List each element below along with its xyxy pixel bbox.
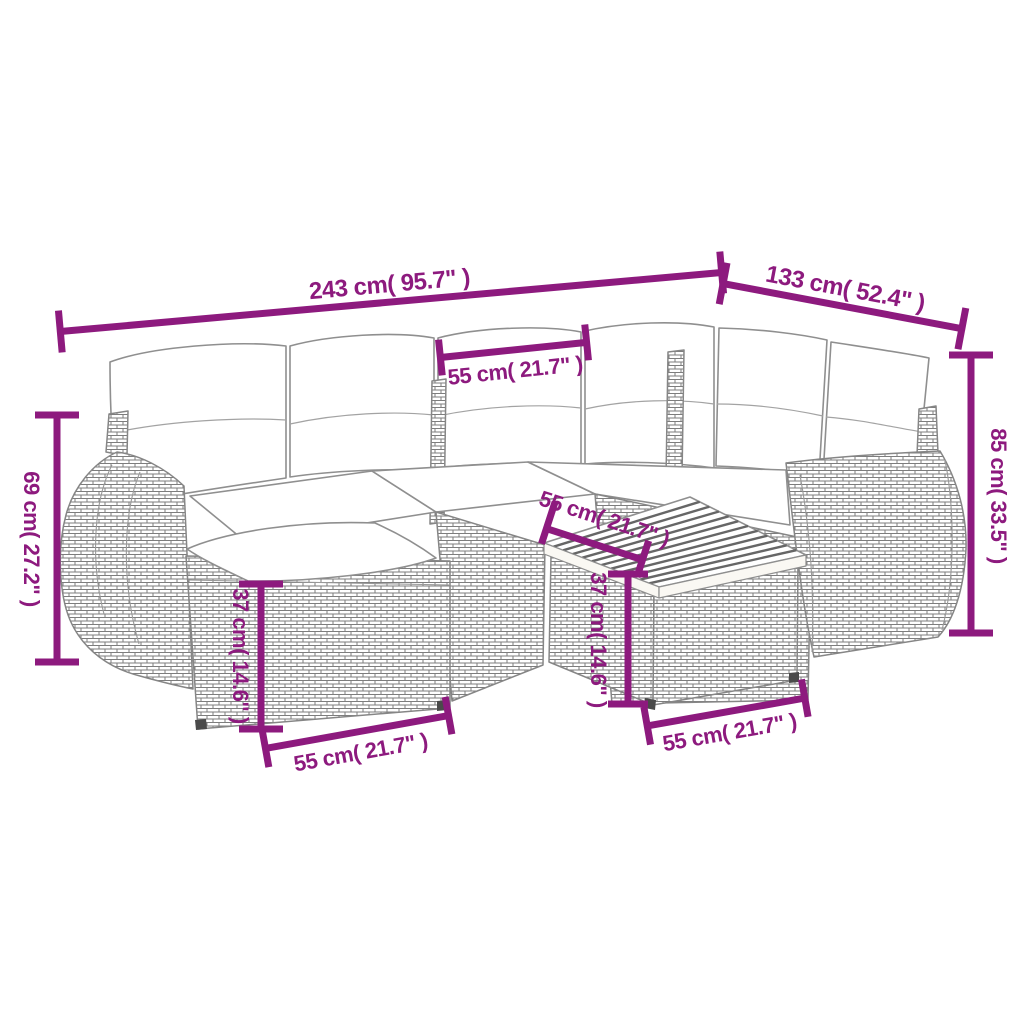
- foot: [789, 672, 799, 683]
- dim-back-height-label: 85 cm( 33.5" ): [986, 428, 1011, 564]
- dim-tick: [958, 308, 966, 349]
- foot: [195, 719, 207, 730]
- back-cushion: [716, 328, 827, 476]
- dim-tick: [262, 730, 269, 767]
- sofa-base-front: [436, 512, 545, 701]
- back-cushion: [585, 323, 714, 468]
- frame-post: [666, 350, 684, 480]
- coffee-table: [544, 497, 806, 705]
- left-armrest-post: [106, 411, 128, 456]
- dim-tick: [585, 324, 589, 360]
- sofa-set-drawing: [60, 323, 966, 730]
- dim-table-height-label: 37 cm( 14.6" ): [586, 572, 611, 708]
- garden-lounge-set-dimension-diagram: 243 cm( 95.7" ) 133 cm( 52.4" ) 55 cm( 2…: [0, 0, 1024, 1024]
- dim-tick: [644, 707, 651, 744]
- dim-footstool-height-label: 37 cm( 14.6" ): [228, 588, 253, 724]
- dim-tick: [445, 697, 452, 734]
- dim-footstool-width-label: 55 cm( 21.7" ): [292, 728, 430, 777]
- right-armrest-post: [917, 406, 938, 455]
- dim-table-width-label: 55 cm( 21.7" ): [661, 708, 799, 756]
- dim-tick: [439, 340, 443, 376]
- back-cushion: [290, 335, 434, 477]
- footstool: [186, 523, 450, 729]
- dimension-diagram-page: 243 cm( 95.7" ) 133 cm( 52.4" ) 55 cm( 2…: [0, 0, 1024, 1024]
- dim-armrest-height-label: 69 cm( 27.2" ): [19, 471, 44, 607]
- dim-tick: [58, 311, 62, 353]
